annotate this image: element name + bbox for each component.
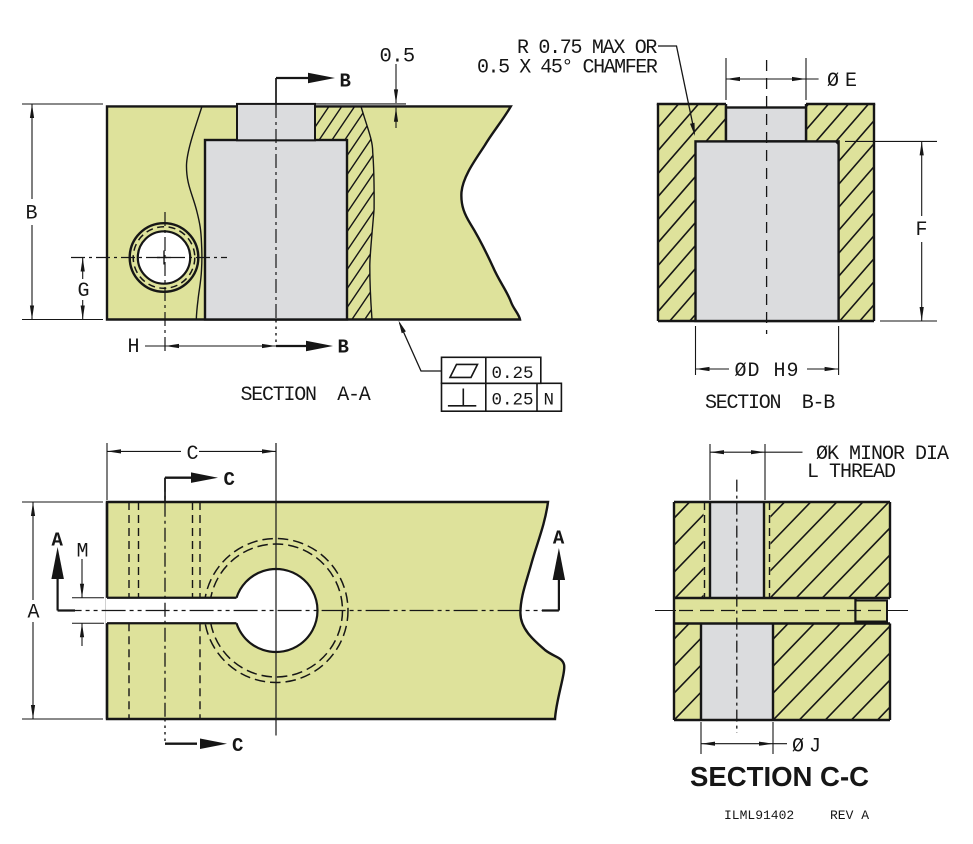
svg-text:G: G [78, 280, 90, 303]
svg-text:N: N [544, 391, 555, 411]
svg-text:0.5: 0.5 [380, 46, 415, 69]
svg-text:ØJ: ØJ [792, 736, 826, 759]
svg-text:B: B [340, 71, 351, 93]
svg-text:SECTION B-B: SECTION B-B [705, 392, 835, 415]
svg-text:ØD H9: ØD H9 [735, 360, 800, 383]
svg-text:A: A [553, 528, 565, 550]
svg-text:C: C [187, 443, 199, 466]
svg-text:C: C [224, 469, 235, 491]
svg-text:C: C [232, 735, 243, 757]
svg-text:ØE: ØE [827, 70, 863, 93]
svg-text:H: H [128, 336, 140, 359]
svg-text:REV A: REV A [830, 808, 869, 823]
svg-text:0.5 X 45° CHAMFER: 0.5 X 45° CHAMFER [477, 57, 658, 80]
svg-text:A: A [28, 602, 40, 625]
svg-text:A: A [52, 530, 64, 552]
svg-text:0.25: 0.25 [492, 364, 534, 384]
svg-text:0.25: 0.25 [492, 391, 534, 411]
svg-text:SECTION C-C: SECTION C-C [690, 761, 869, 792]
svg-text:ILML91402: ILML91402 [724, 808, 794, 823]
svg-text:B: B [26, 203, 38, 226]
svg-text:L THREAD: L THREAD [807, 461, 895, 484]
svg-text:B: B [338, 337, 349, 359]
svg-text:F: F [916, 219, 928, 242]
svg-text:SECTION A-A: SECTION A-A [241, 384, 371, 407]
